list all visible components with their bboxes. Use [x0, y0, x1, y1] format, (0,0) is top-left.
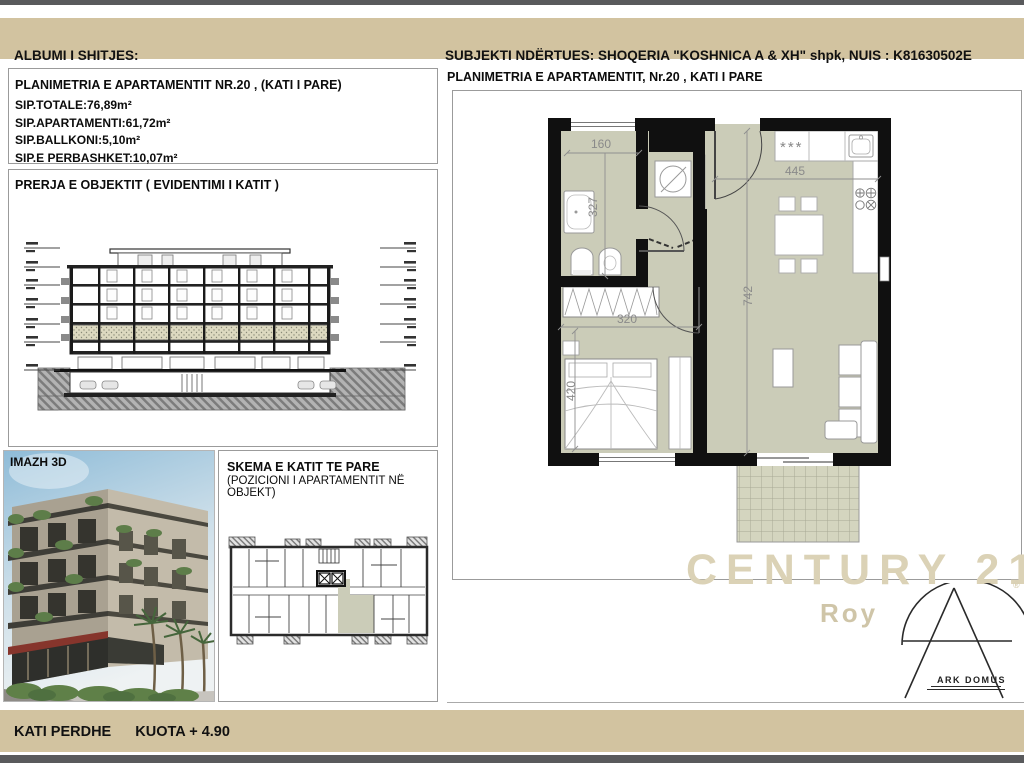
plan-title: PLANIMETRIA E APARTAMENTIT, Nr.20 , KATI…: [447, 70, 763, 85]
balcony-door: [757, 453, 833, 466]
building-3d-render: IMAZH 3D: [4, 451, 214, 701]
dim-hall-width: 320: [617, 312, 637, 326]
apartment-plan-drawing: ***: [453, 91, 1021, 579]
builder-subject: SUBJEKTI NDËRTUES: SHOQERIA "KOSHNICA A …: [445, 48, 972, 63]
imazh-3d-label: IMAZH 3D: [10, 455, 67, 469]
sip-perbashket: SIP.E PERBASHKET:10,07m²: [15, 150, 431, 168]
schema-title: SKEMA E KATIT TE PARE: [227, 460, 437, 475]
bedroom-window: [599, 453, 675, 466]
dim-bath-depth: 327: [586, 197, 600, 217]
toilet-icon: [571, 248, 593, 275]
ground-mass-bottom: [38, 396, 405, 410]
nightstand: [563, 341, 579, 355]
elevation-markers-right: [380, 242, 416, 370]
apartment-plan-panel: ***: [452, 90, 1022, 580]
logo-underlines: [927, 687, 1005, 690]
penthouse-roof: [110, 249, 290, 253]
roy-watermark: Roy: [820, 598, 878, 629]
apartment-info-panel: PLANIMETRIA E APARTAMENTIT NR.20 , (KATI…: [8, 68, 438, 164]
info-title: PLANIMETRIA E APARTAMENTIT NR.20 , (KATI…: [15, 78, 431, 93]
building-section-drawing: [10, 196, 435, 444]
bath-window: [571, 118, 635, 131]
ark-domus-logo: ARK DOMUS: [893, 583, 1024, 705]
elevation-markers-left: [24, 242, 60, 370]
storefronts: [78, 357, 324, 369]
footer-floor-label: KATI PERDHE: [14, 724, 111, 740]
windows-left-face: [20, 519, 96, 619]
footer-elevation-label: KUOTA + 4.90: [135, 724, 230, 740]
kitchen-marks: ***: [780, 139, 804, 156]
hall-wardrobe: [563, 287, 659, 317]
balcony: [737, 464, 859, 542]
header-band: ALBUMI I SHITJES: SUBJEKTI NDËRTUES: SHO…: [0, 18, 1024, 59]
floor-schema-drawing: [221, 491, 435, 701]
sip-ballkoni: SIP.BALLKONI:5,10m²: [15, 132, 431, 150]
schema-elevators: [317, 571, 345, 586]
bottom-dark-strip: [0, 755, 1024, 763]
schema-stairs: [319, 549, 339, 563]
highlighted-floor-band: [70, 325, 330, 340]
kitchen-counter-right: [853, 161, 878, 273]
highlighted-apartment: [338, 595, 374, 633]
foundation-slab: [64, 393, 336, 397]
render-3d-panel: IMAZH 3D: [3, 450, 215, 702]
dim-bedroom-depth: 420: [564, 381, 578, 401]
sip-totale: SIP.TOTALE:76,89m²: [15, 97, 431, 115]
right-wall-niche: [880, 257, 889, 281]
shaft: [655, 161, 691, 197]
coffee-table: [773, 349, 793, 387]
sip-apartamenti: SIP.APARTAMENTI:61,72m²: [15, 115, 431, 133]
bidet-icon: [599, 248, 621, 275]
section-title: PRERJA E OBJEKTIT ( EVIDENTIMI I KATIT ): [15, 178, 431, 193]
logo-text: ARK DOMUS: [937, 675, 1006, 685]
bedroom-wardrobe: [669, 357, 691, 449]
top-dark-strip: [0, 0, 1024, 5]
dim-bath-window: 160: [591, 137, 611, 151]
windows-right-face: [119, 531, 186, 619]
building-section-panel: PRERJA E OBJEKTIT ( EVIDENTIMI I KATIT ): [8, 169, 438, 447]
dim-kitchen-width: 445: [785, 164, 805, 178]
footer-text: KATI PERDHE KUOTA + 4.90: [14, 724, 230, 740]
album-title: ALBUMI I SHITJES:: [14, 48, 139, 63]
floor-schema-panel: SKEMA E KATIT TE PARE (POZICIONI I APART…: [218, 450, 438, 702]
sales-album-sheet: { "header": { "left": "ALBUMI I SHITJES:…: [0, 0, 1024, 768]
dim-living-depth: 742: [741, 286, 755, 306]
bed: [565, 359, 657, 449]
